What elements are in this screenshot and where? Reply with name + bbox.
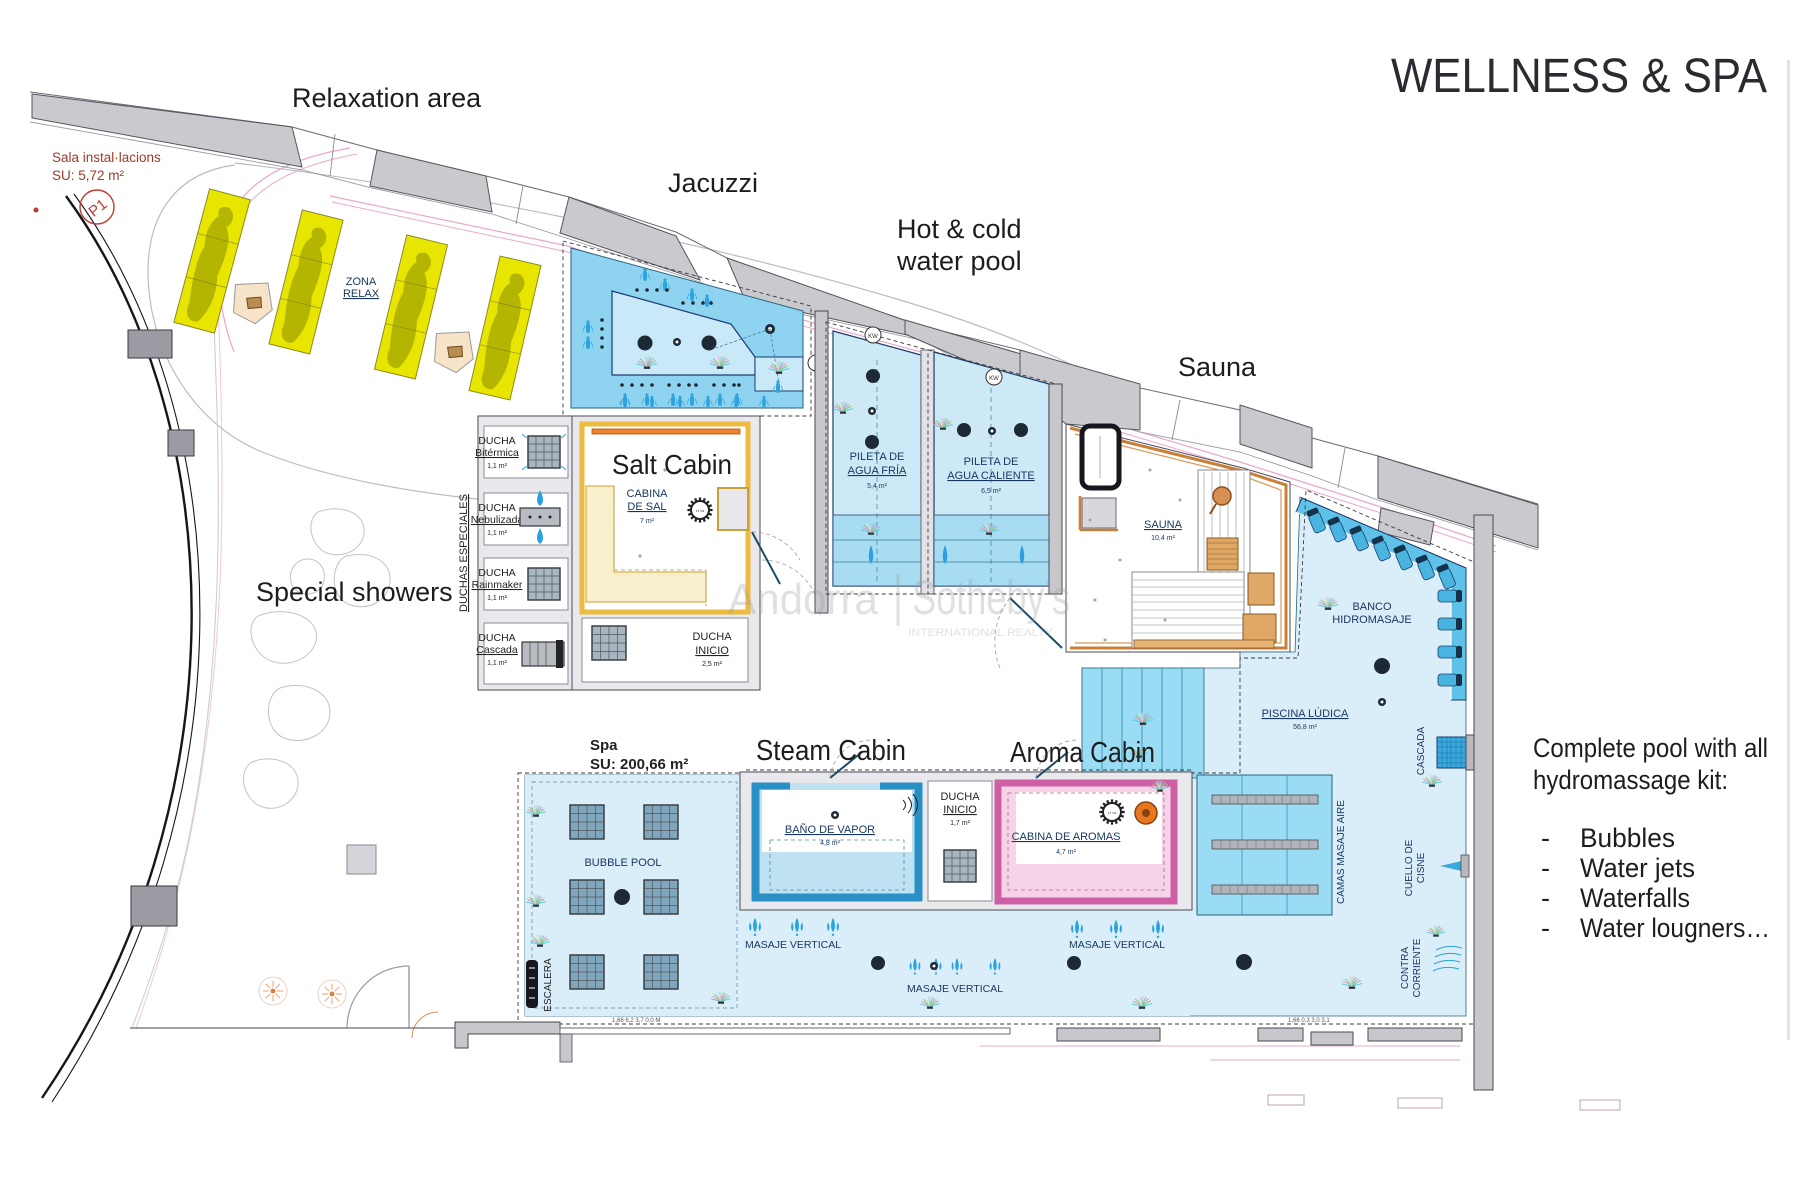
svg-text:PILETA DE: PILETA DE [850,451,905,463]
svg-text:PILETA DE: PILETA DE [964,456,1019,468]
svg-text:5,4 m²: 5,4 m² [867,483,888,490]
svg-text:Spa: Spa [590,737,618,754]
svg-text:SAUNA: SAUNA [1144,519,1183,531]
svg-text:Andorra: Andorra [728,575,878,624]
svg-text:MASAJE VERTICAL: MASAJE VERTICAL [745,939,841,951]
svg-text:BUBBLE POOL: BUBBLE POOL [584,857,661,869]
svg-text:Complete pool with all: Complete pool with all [1533,733,1768,763]
svg-text:Water jets: Water jets [1580,853,1695,883]
svg-text:Sauna: Sauna [1178,352,1257,382]
svg-text:Rainmaker: Rainmaker [472,579,523,591]
svg-text:-: - [1541,823,1550,853]
svg-text:CABINA DE AROMAS: CABINA DE AROMAS [1012,831,1121,843]
svg-text:1,1 m²: 1,1 m² [487,463,508,470]
svg-text:DUCHA: DUCHA [940,791,980,803]
svg-text:MASAJE VERTICAL: MASAJE VERTICAL [1069,939,1165,951]
svg-text:4,8 m²: 4,8 m² [820,840,841,847]
svg-text:1,66 6,2 3,7 0,0 M: 1,66 6,2 3,7 0,0 M [612,1018,660,1024]
svg-text:RELAX: RELAX [343,288,380,300]
svg-text:Steam Cabin: Steam Cabin [756,735,906,767]
svg-text:ZONA: ZONA [346,276,377,288]
svg-text:1,1 m²: 1,1 m² [487,595,508,602]
svg-text:INTERNATIONAL REALTY: INTERNATIONAL REALTY [908,627,1054,639]
svg-text:Bubbles: Bubbles [1580,823,1675,853]
svg-text:DUCHA: DUCHA [478,632,515,644]
svg-text:DE SAL: DE SAL [627,501,666,513]
svg-text:t.t vs: t.t vs [696,508,704,513]
svg-text:-: - [1541,913,1550,943]
svg-text:Bitérmica: Bitérmica [475,447,519,459]
svg-text:7 m²: 7 m² [640,518,655,525]
svg-text:Waterfalls: Waterfalls [1580,883,1690,913]
svg-text:Sala instal·lacions: Sala instal·lacions [52,150,161,165]
svg-text:AGUA FRÍA: AGUA FRÍA [848,464,907,477]
svg-text:AGUA CALIENTE: AGUA CALIENTE [947,470,1034,482]
svg-text:DUCHAS ESPECIALES: DUCHAS ESPECIALES [458,494,470,612]
svg-text:CABINA: CABINA [627,488,669,500]
svg-text:Special showers: Special showers [256,577,453,607]
svg-text:CASCADA: CASCADA [1416,727,1427,776]
svg-text:INICIO: INICIO [695,645,729,657]
svg-text:1,66 0,3 3,0 3,1: 1,66 0,3 3,0 3,1 [1288,1018,1330,1024]
svg-text:CONTRA: CONTRA [1400,947,1411,990]
svg-text:6,5 m²: 6,5 m² [981,488,1002,495]
svg-text:CISNE: CISNE [1416,852,1427,883]
svg-text:hydromassage kit:: hydromassage kit: [1533,765,1728,795]
svg-text:KW: KW [868,334,878,340]
svg-text:DUCHA: DUCHA [692,631,732,643]
svg-text:MASAJE VERTICAL: MASAJE VERTICAL [907,983,1003,995]
svg-text:DUCHA: DUCHA [478,502,515,514]
svg-text:CAMAS MASAJE AIRE: CAMAS MASAJE AIRE [1336,800,1347,904]
svg-text:WELLNESS & SPA: WELLNESS & SPA [1391,50,1767,103]
svg-text:BAÑO DE VAPOR: BAÑO DE VAPOR [785,823,875,836]
svg-text:-: - [1541,883,1550,913]
svg-text:Salt Cabin: Salt Cabin [612,449,732,480]
svg-text:DUCHA: DUCHA [478,435,515,447]
svg-text:1,1 m²: 1,1 m² [487,530,508,537]
svg-text:Sotheby’s: Sotheby’s [912,572,1070,625]
svg-text:Relaxation area: Relaxation area [292,83,482,113]
svg-text:t.t vs: t.t vs [1108,810,1116,815]
svg-text:2,5 m²: 2,5 m² [702,661,723,668]
svg-text:DUCHA: DUCHA [478,567,515,579]
svg-text:10,4 m²: 10,4 m² [1151,535,1175,542]
svg-text:Water lougners…: Water lougners… [1580,913,1770,943]
svg-text:4,7 m²: 4,7 m² [1056,849,1077,856]
svg-text:Aroma Cabin: Aroma Cabin [1010,737,1155,769]
svg-text:-: - [1541,853,1550,883]
svg-text:water pool: water pool [896,246,1022,276]
svg-text:INICIO: INICIO [943,804,977,816]
svg-text:BANCO: BANCO [1352,601,1392,613]
svg-text:1,1 m²: 1,1 m² [487,660,508,667]
svg-text:Nebulizada: Nebulizada [471,514,524,526]
svg-text:SU: 5,72 m²: SU: 5,72 m² [52,168,125,183]
svg-text:Hot & cold: Hot & cold [897,214,1022,244]
svg-text:SU: 200,66 m²: SU: 200,66 m² [590,756,688,773]
svg-text:1,7 m²: 1,7 m² [950,820,971,827]
svg-text:HIDROMASAJE: HIDROMASAJE [1332,614,1411,626]
svg-text:CUELLO DE: CUELLO DE [1404,839,1415,896]
svg-text:Cascada: Cascada [476,644,518,656]
svg-text:PISCINA LÚDICA: PISCINA LÚDICA [1262,707,1349,720]
svg-text:CORRIENTE: CORRIENTE [1412,938,1423,997]
svg-text:KW: KW [989,376,999,382]
svg-text:56,8 m²: 56,8 m² [1293,724,1317,731]
svg-text:Jacuzzi: Jacuzzi [668,168,758,198]
svg-text:ESCALERA: ESCALERA [543,958,554,1012]
